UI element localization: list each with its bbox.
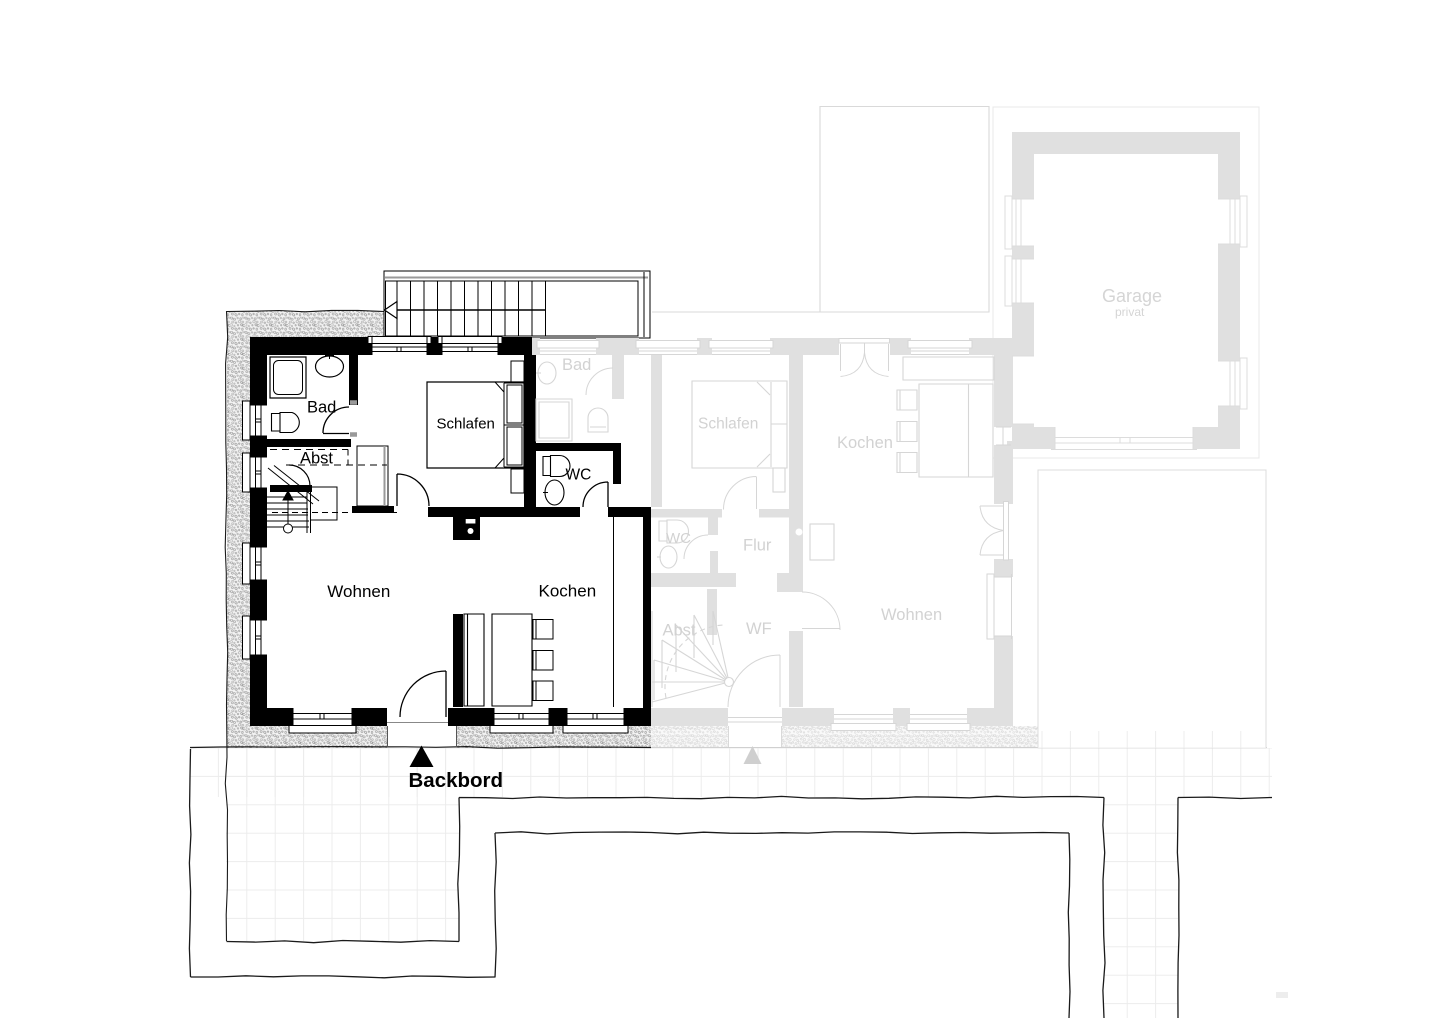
svg-text:WC: WC: [566, 467, 592, 484]
svg-text:Schlafen: Schlafen: [437, 416, 495, 433]
svg-text:privat: privat: [1115, 305, 1145, 319]
svg-text:Kochen: Kochen: [837, 434, 893, 452]
svg-text:Flur: Flur: [743, 537, 772, 555]
svg-text:Abst: Abst: [300, 450, 333, 468]
svg-text:Abst: Abst: [663, 622, 696, 640]
svg-text:Wohnen: Wohnen: [327, 582, 390, 601]
svg-text:WF: WF: [746, 620, 772, 638]
svg-text:Wohnen: Wohnen: [881, 606, 942, 624]
svg-text:Schlafen: Schlafen: [698, 416, 758, 433]
svg-text:Bad: Bad: [307, 399, 336, 417]
svg-text:Garage: Garage: [1102, 286, 1162, 306]
svg-text:Backbord: Backbord: [409, 769, 504, 792]
svg-text:Bad: Bad: [562, 356, 591, 374]
svg-text:Kochen: Kochen: [539, 582, 597, 601]
svg-text:WC: WC: [666, 530, 691, 547]
